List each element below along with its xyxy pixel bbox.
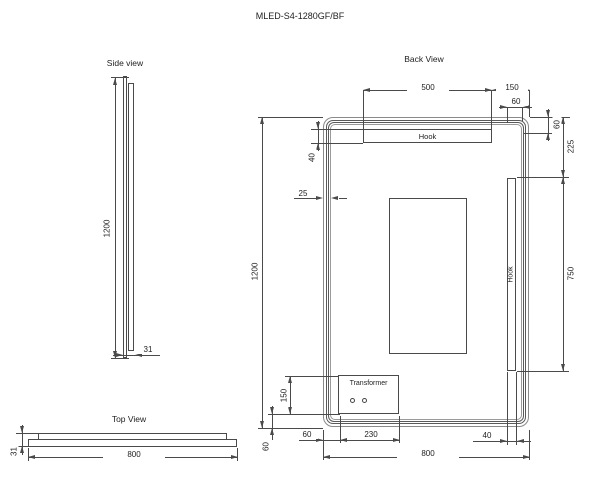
arrowhead (270, 407, 274, 414)
transformer-terminal (350, 398, 355, 403)
ext-line (517, 371, 569, 372)
arrowhead (500, 439, 507, 443)
ext-line (507, 107, 508, 123)
ext-line (491, 90, 492, 129)
arrowhead (116, 353, 123, 357)
dim-line (115, 78, 116, 358)
arrowhead (561, 170, 565, 177)
arrowhead (28, 455, 35, 459)
top-view-mirror-panel (28, 439, 237, 447)
back-view-label: Back View (384, 54, 464, 64)
dim-line (563, 117, 564, 177)
dim-edge-to-hook-bottom: 60 (553, 113, 562, 137)
arrowhead (20, 446, 24, 453)
dim-top-thickness: 31 (10, 440, 19, 464)
hook-plate-top-label: Hook (419, 132, 437, 141)
dim-transformer-offset-left: 60 (296, 430, 318, 439)
dim-line (262, 117, 263, 428)
arrowhead (288, 407, 292, 414)
arrowhead (523, 455, 530, 459)
dim-hook-height: 40 (308, 147, 317, 169)
ext-line (516, 372, 517, 445)
arrowhead (270, 428, 274, 435)
dim-top-to-side-hook: 225 (567, 133, 576, 161)
drawing-sheet: MLED-S4-1280GF/BF Side view 1200 31 Top … (0, 0, 600, 478)
arrowhead (331, 196, 338, 200)
dim-side-height: 1200 (103, 214, 112, 244)
top-view-label: Top View (89, 414, 169, 424)
transformer-label: Transformer (339, 380, 398, 387)
side-view-mirror-panel (123, 76, 127, 358)
arrowhead (393, 438, 400, 442)
arrowhead (260, 117, 264, 124)
dim-side-hook-inset: 40 (475, 431, 499, 440)
arrowhead (561, 364, 565, 371)
transformer-terminal (362, 398, 367, 403)
ext-line (16, 433, 38, 434)
ext-line (507, 372, 508, 445)
side-view-label: Side view (85, 58, 165, 68)
dim-side-hook-length: 750 (567, 259, 576, 289)
ext-line (311, 129, 363, 130)
arrowhead (323, 455, 330, 459)
arrowhead (363, 88, 370, 92)
ext-line (522, 107, 523, 121)
arrowhead (561, 177, 565, 184)
arrowhead (20, 426, 24, 433)
dim-side-thickness: 31 (138, 345, 158, 354)
drawing-title: MLED-S4-1280GF/BF (0, 11, 600, 21)
transformer-box: Transformer (338, 375, 399, 414)
ext-line (258, 428, 323, 429)
ext-line (268, 414, 340, 415)
arrowhead (561, 117, 565, 124)
arrowhead (288, 376, 292, 383)
arrowhead (517, 439, 524, 443)
ext-line (258, 117, 323, 118)
dim-hook-gap-top: 60 (504, 97, 528, 106)
hook-rail-right: Hook (507, 178, 516, 371)
dim-back-width: 800 (397, 449, 459, 458)
dim-line (563, 177, 564, 371)
dim-line (340, 440, 400, 441)
ext-line (285, 376, 340, 377)
back-view-center-cutout (389, 198, 467, 354)
hook-rail-right-label: Hook (508, 266, 515, 282)
arrowhead (113, 78, 117, 85)
arrowhead (546, 133, 550, 140)
arrowhead (485, 88, 492, 92)
dim-hook-to-right-edge: 150 (496, 83, 528, 92)
dim-transformer-offset-bottom: 60 (262, 436, 271, 458)
ext-line (363, 90, 364, 129)
hook-plate-top: Hook (363, 129, 492, 143)
ext-line (529, 90, 530, 117)
arrowhead (340, 438, 347, 442)
dim-hook-width: 500 (407, 83, 449, 92)
arrowhead (260, 421, 264, 428)
dim-top-width: 800 (103, 450, 165, 459)
ext-line (111, 358, 129, 359)
side-view-back-panel (128, 83, 134, 351)
arrowhead (316, 143, 320, 150)
arrowhead (316, 122, 320, 129)
dim-back-height: 1200 (251, 257, 260, 287)
dim-transformer-height: 150 (280, 384, 289, 408)
dim-frame-inset: 25 (292, 189, 314, 198)
arrowhead (546, 110, 550, 117)
dim-line (294, 198, 316, 199)
arrowhead (231, 455, 238, 459)
dim-line (339, 198, 347, 199)
dim-transformer-width: 230 (350, 430, 392, 439)
arrowhead (316, 196, 323, 200)
